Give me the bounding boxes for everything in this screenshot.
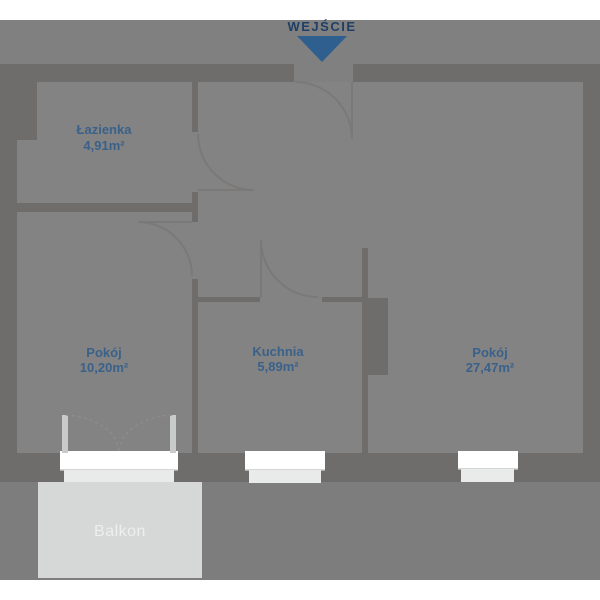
floor-plan-page: Balkon WEJŚCIE Łazienka 4,91m² Pokój 10,… [0, 0, 600, 600]
entrance-opening [294, 64, 353, 82]
bathroom-door-opening [192, 132, 198, 192]
pokoj-1-door-opening [192, 222, 198, 279]
room-name: Pokój [86, 345, 121, 360]
floor-plan-canvas: Balkon WEJŚCIE Łazienka 4,91m² Pokój 10,… [0, 0, 600, 600]
balcony-window-frame [60, 451, 178, 470]
room-area: 4,91m² [83, 138, 125, 153]
room-label-kuchnia: Kuchnia 5,89m² [252, 344, 304, 374]
pokoj-2-window-frame [458, 451, 518, 469]
wall-pillar [368, 298, 388, 375]
kitchen-room-divider-wall [362, 248, 368, 453]
room-name: Pokój [472, 345, 507, 360]
balcony-door-leaf-left [62, 415, 68, 453]
room-label-lazienka: Łazienka 4,91m² [77, 122, 133, 153]
room-name: Kuchnia [252, 344, 304, 359]
room-label-pokoj-2: Pokój 27,47m² [466, 345, 515, 375]
balcony-label: Balkon [94, 523, 146, 540]
entrance-label: WEJŚCIE [287, 19, 356, 34]
room-floor-hall-pokoj-2 [198, 82, 583, 453]
pokoj-2-window [458, 451, 518, 482]
room-label-pokoj-1: Pokój 10,20m² [80, 345, 129, 375]
room-area: 5,89m² [257, 359, 299, 374]
kitchen-wall-right-segment [322, 297, 362, 302]
room-name: Łazienka [77, 122, 133, 137]
room-floor-lazienka-ext [17, 140, 37, 203]
kitchen-wall-left-segment [198, 297, 260, 302]
kitchen-window [245, 451, 325, 483]
room-area: 27,47m² [466, 360, 515, 375]
kitchen-window-frame [245, 451, 325, 470]
room-floor-pokoj-1 [17, 212, 192, 453]
pokoj-2-window-sill [461, 469, 514, 482]
balcony-window-sill [64, 470, 174, 483]
kitchen-window-sill [249, 470, 321, 483]
room-area: 10,20m² [80, 360, 129, 375]
balcony-door-leaf-right [170, 415, 176, 453]
